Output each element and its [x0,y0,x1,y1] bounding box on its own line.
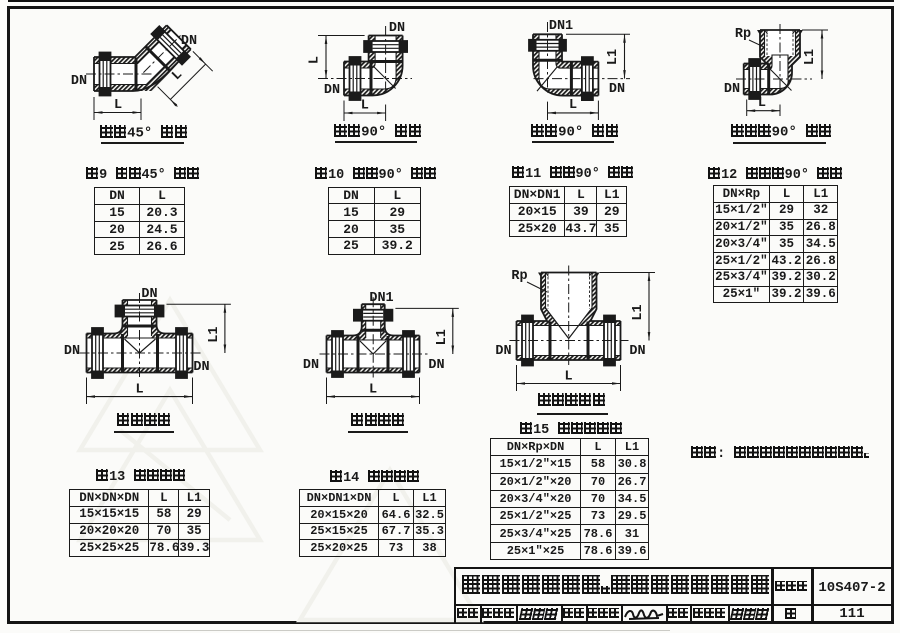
svg-text:L1: L1 [631,304,646,320]
svg-text:DN: DN [71,74,87,89]
svg-text:DN1: DN1 [369,291,393,306]
svg-text:DN: DN [303,358,319,373]
svg-text:DN: DN [389,21,405,36]
svg-text:L: L [135,383,143,398]
svg-text:DN: DN [428,358,444,373]
svg-text:L: L [564,370,572,385]
svg-text:L: L [308,56,323,64]
svg-text:DN: DN [724,82,740,97]
svg-text:L: L [114,98,122,113]
svg-text:L: L [758,96,766,111]
svg-text:DN: DN [64,344,80,359]
svg-text:Rp: Rp [511,269,527,284]
svg-text:DN: DN [324,83,340,98]
svg-text:DN: DN [181,34,197,49]
svg-text:DN: DN [629,344,645,359]
svg-text:DN: DN [193,360,209,375]
svg-text:Rp: Rp [735,27,751,42]
svg-text:L1: L1 [606,49,621,65]
svg-text:DN: DN [495,344,511,359]
svg-text:DN: DN [141,287,157,302]
svg-text:DN: DN [609,82,625,97]
svg-text:L1: L1 [435,329,450,345]
svg-text:L1: L1 [207,326,222,342]
svg-text:L: L [369,383,377,398]
svg-text:L1: L1 [803,49,818,65]
svg-text:L: L [569,98,577,113]
svg-text:DN1: DN1 [549,19,573,34]
svg-text:L: L [361,99,369,114]
svg-text:L: L [170,68,186,84]
